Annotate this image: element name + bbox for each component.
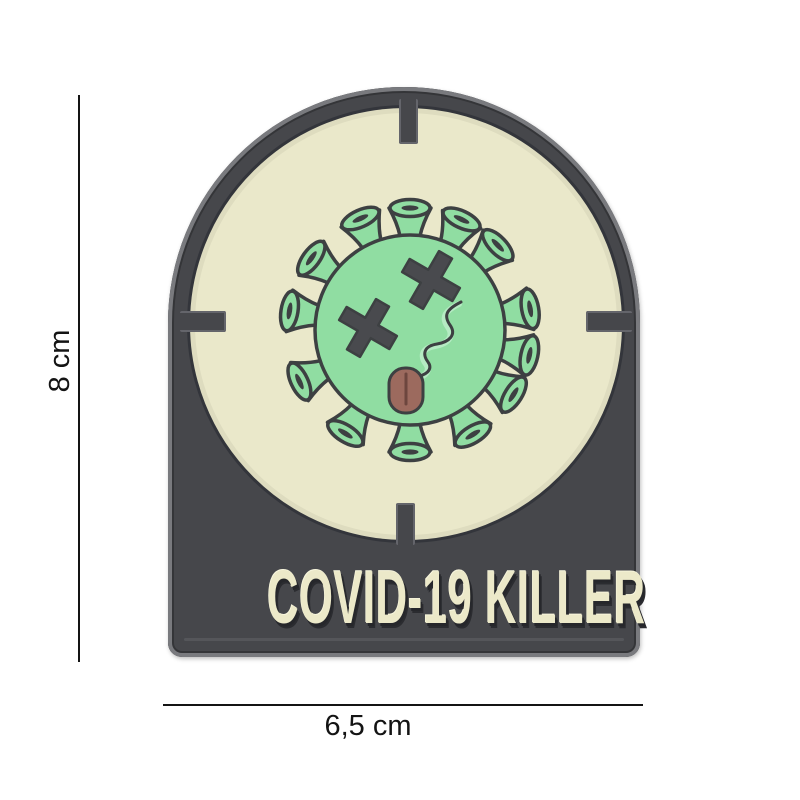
- product-photo: 8 cm 6,5 cm: [0, 0, 800, 800]
- tongue: [389, 368, 423, 413]
- pvc-patch: COVID-19 KILLER: [168, 87, 640, 657]
- patch-title: COVID-19 KILLER: [267, 564, 541, 630]
- width-dimension-label: 6,5 cm: [268, 710, 468, 743]
- reticle-notch-top: [399, 99, 418, 144]
- reticle-notch-right: [586, 311, 632, 332]
- virus-icon: [250, 170, 570, 490]
- height-dimension-label: 8 cm: [44, 311, 76, 411]
- reticle-notch-bottom: [396, 503, 415, 545]
- reticle-notch-left: [180, 311, 226, 332]
- width-dimension-line: [163, 704, 643, 706]
- height-dimension-line: [78, 95, 80, 662]
